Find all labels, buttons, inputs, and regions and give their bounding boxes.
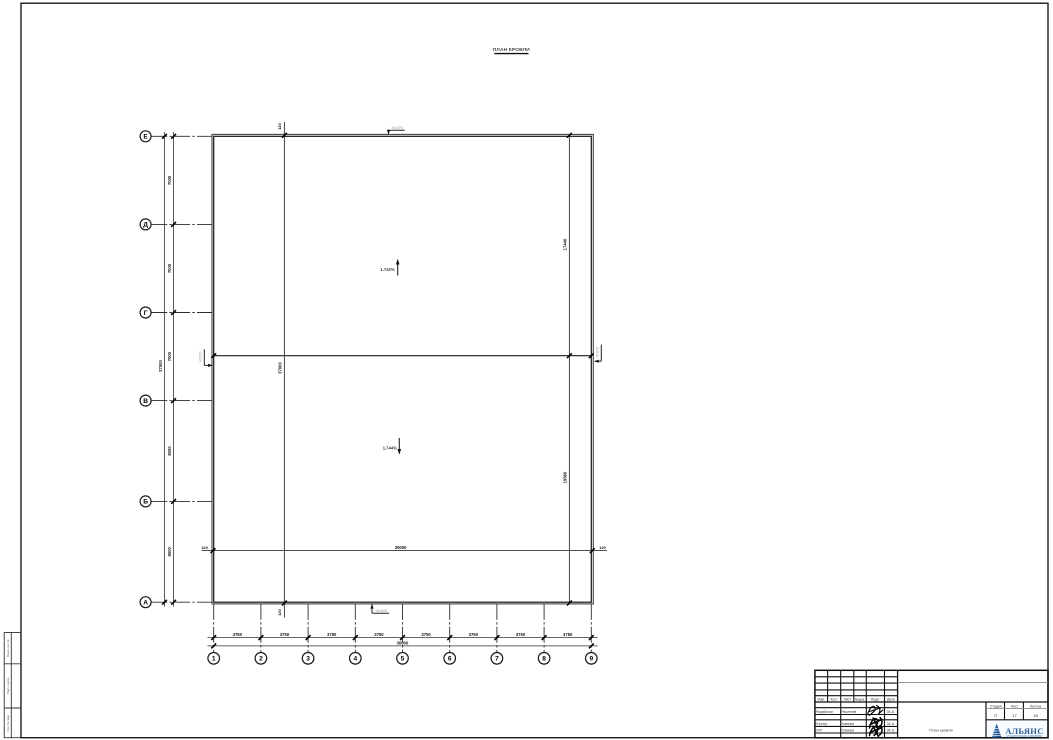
svg-text:ПЛАН КРОВЛИ: ПЛАН КРОВЛИ [493,47,530,53]
svg-text:1.743%: 1.743% [380,267,394,272]
svg-text:Лист: Лист [843,698,851,702]
svg-text:3750: 3750 [421,632,431,637]
svg-text:7000: 7000 [167,175,172,185]
svg-text:Взам. инв. №: Взам. инв. № [6,640,10,657]
svg-text:Разработал: Разработал [816,710,833,714]
svg-text:8: 8 [542,656,546,663]
svg-text:120: 120 [599,545,606,550]
svg-text:3750: 3750 [516,632,526,637]
svg-text:Лист: Лист [1011,705,1019,709]
svg-text:9: 9 [589,656,593,663]
svg-text:План кровли: План кровли [929,728,953,733]
svg-text:2: 2 [259,656,263,663]
svg-text:+6.600: +6.600 [375,609,387,613]
svg-text:1.744%: 1.744% [383,445,397,450]
svg-text:Дата: Дата [887,698,895,702]
svg-text:3750: 3750 [563,632,573,637]
svg-text:3750: 3750 [374,632,384,637]
svg-text:+6.670: +6.670 [596,347,600,358]
svg-text:№док.: №док. [855,698,865,702]
svg-text:17: 17 [1012,713,1017,718]
svg-text:Инв. № подл.: Инв. № подл. [6,714,10,732]
svg-text:Подп. и дата: Подп. и дата [6,677,10,694]
svg-text:1: 1 [212,656,216,663]
svg-text:7: 7 [495,656,499,663]
svg-text:Кол.: Кол. [831,698,838,702]
svg-text:4: 4 [353,656,357,663]
svg-text:Н.контр.: Н.контр. [816,722,828,726]
svg-text:ГИП: ГИП [816,728,823,732]
svg-text:5: 5 [401,656,405,663]
svg-text:3750: 3750 [233,632,243,637]
svg-text:Хованов: Хованов [842,722,855,726]
svg-text:04.11: 04.11 [887,722,895,726]
svg-text:30000: 30000 [397,640,409,645]
svg-text:37000: 37000 [277,362,282,374]
svg-text:8000: 8000 [167,546,172,556]
svg-text:7000: 7000 [167,263,172,273]
svg-text:04.11: 04.11 [887,728,895,732]
svg-text:+6.670: +6.670 [199,351,203,362]
svg-text:В: В [143,398,148,405]
svg-text:3: 3 [306,656,310,663]
svg-text:Д: Д [143,222,148,229]
svg-text:Е: Е [143,134,148,141]
svg-text:П: П [994,713,997,718]
svg-text:Изм.: Изм. [817,698,825,702]
svg-text:Стадия: Стадия [990,705,1002,709]
svg-text:3750: 3750 [327,632,337,637]
svg-text:А: А [143,600,148,607]
svg-text:3750: 3750 [280,632,290,637]
svg-text:+6.670: +6.670 [391,126,403,130]
svg-text:Г: Г [144,310,148,317]
svg-text:3750: 3750 [469,632,479,637]
svg-text:120: 120 [277,609,282,616]
svg-text:17440: 17440 [563,238,568,250]
svg-text:30000: 30000 [395,545,407,550]
svg-text:Решетнев: Решетнев [842,710,857,714]
svg-text:6: 6 [448,656,452,663]
svg-text:Подп.: Подп. [871,698,880,702]
svg-text:120: 120 [201,545,208,550]
svg-text:строительная компания: строительная компания [1007,734,1043,738]
svg-text:120: 120 [277,123,282,130]
svg-text:19560: 19560 [563,471,568,483]
svg-text:Б: Б [143,499,148,506]
svg-text:18: 18 [1033,713,1038,718]
svg-text:37000: 37000 [158,360,163,372]
svg-text:04.11: 04.11 [887,710,895,714]
svg-text:Хованов: Хованов [842,728,855,732]
svg-text:7000: 7000 [167,351,172,361]
svg-text:Листов: Листов [1030,705,1042,709]
svg-text:8000: 8000 [167,446,172,456]
